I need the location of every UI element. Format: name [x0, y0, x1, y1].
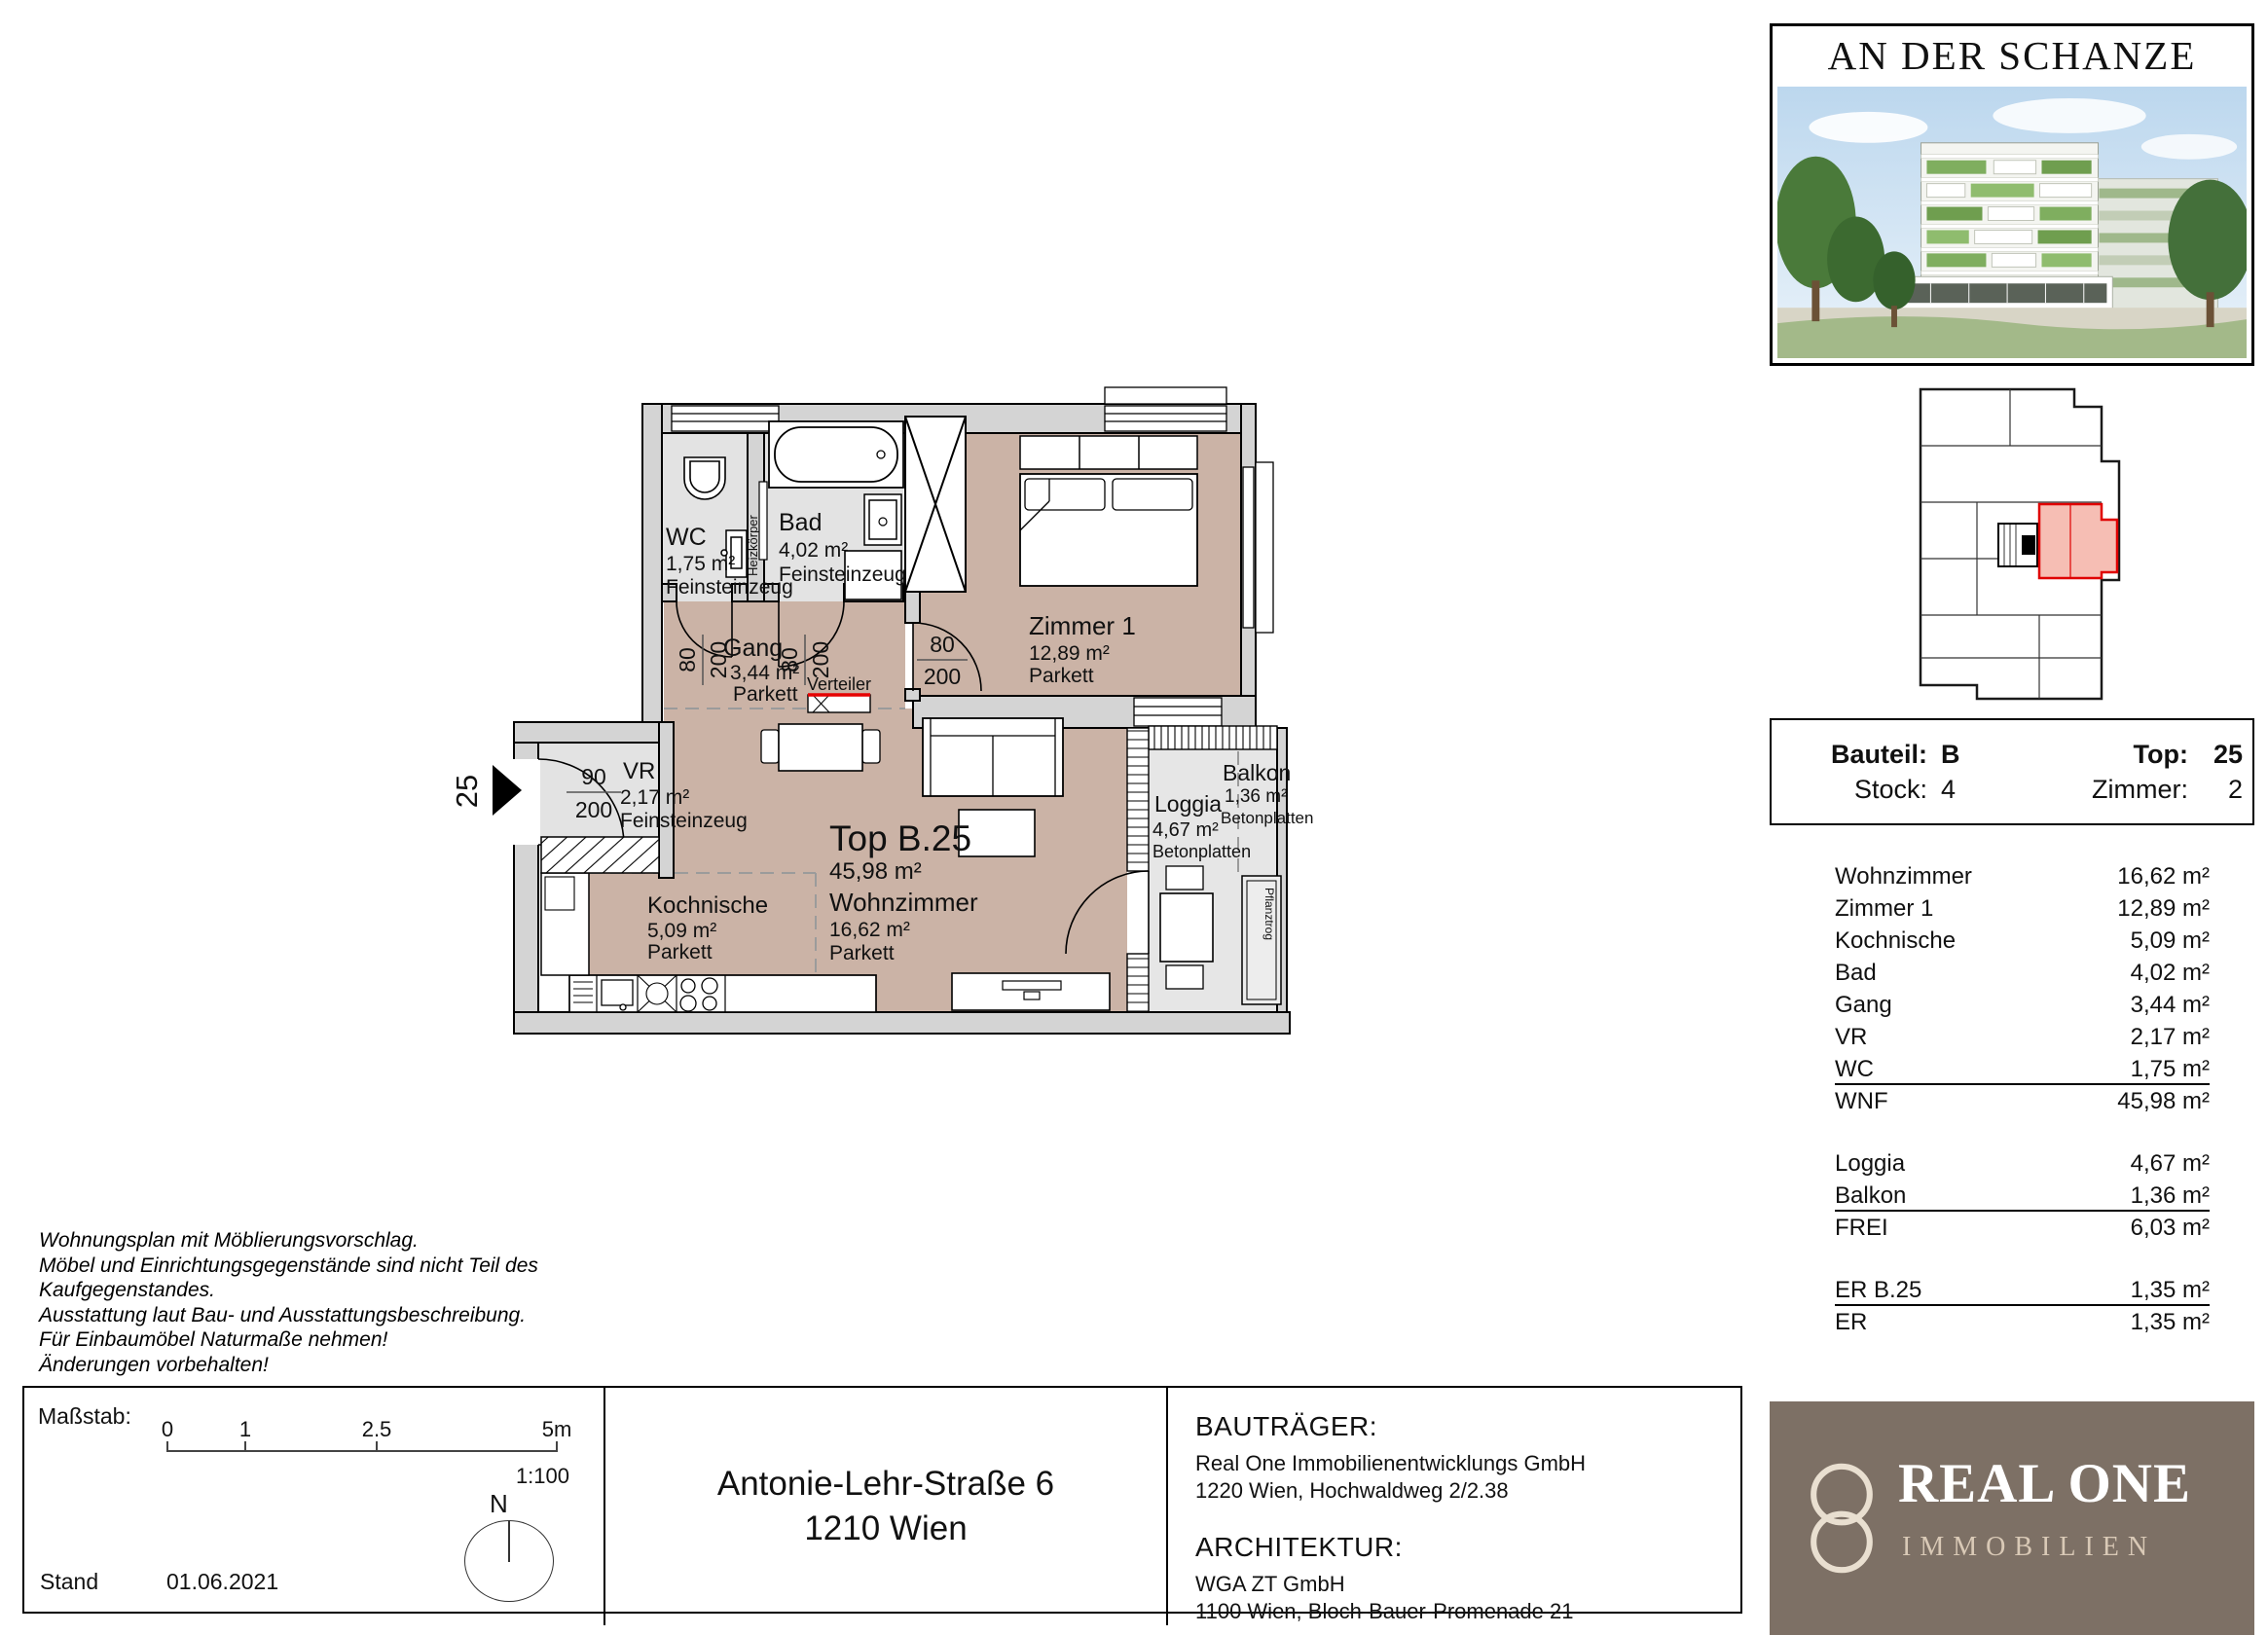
stand-label: Stand: [40, 1569, 98, 1595]
bad-area: 4,02 m²: [779, 539, 848, 562]
gang-floor: Parkett: [733, 683, 798, 706]
toilet-icon: [684, 457, 725, 499]
area-row: VR 2,17 m²: [1835, 1021, 2210, 1053]
key-plan: [1884, 378, 2137, 708]
area-row-label: Kochnische: [1835, 925, 1956, 957]
stair-core-icon: [1998, 524, 2037, 566]
balkon-area: 1,36 m²: [1225, 786, 1287, 807]
area-row-value: 1,36 m²: [2131, 1180, 2210, 1210]
heizkoerper-label: Heizkörper: [746, 514, 760, 576]
top-label: Top:: [1999, 739, 2188, 770]
area-row-label: Loggia: [1835, 1147, 1905, 1180]
area-table: Wohnzimmer 16,62 m² Zimmer 1 12,89 m² Ko…: [1835, 860, 2210, 1338]
area-row-label: FREI: [1835, 1212, 1888, 1244]
area-row: Gang 3,44 m²: [1835, 989, 2210, 1021]
entrance-door-height: 200: [575, 797, 612, 822]
building-rendering: [1777, 87, 2247, 358]
kochnische-label: Kochnische: [647, 892, 768, 919]
kitchen-counter-icon: [569, 975, 876, 1012]
area-row-value: 5,09 m²: [2131, 925, 2210, 957]
entrance-number: 25: [450, 775, 484, 808]
area-row-value: 4,02 m²: [2131, 957, 2210, 989]
address-line2: 1210 Wien: [804, 1507, 967, 1551]
disclaimer-line: Änderungen vorbehalten!: [39, 1353, 604, 1378]
area-row-value: 12,89 m²: [2117, 892, 2210, 925]
company-logo: REAL ONE IMMOBILIEN: [1770, 1401, 2254, 1635]
area-row-label: WNF: [1835, 1085, 1888, 1117]
project-title: AN DER SCHANZE: [1773, 26, 2251, 85]
top-unit-area: 45,98 m²: [829, 858, 922, 885]
area-row-total: ER 1,35 m²: [1835, 1306, 2210, 1338]
loggia-label: Loggia: [1154, 791, 1222, 817]
area-row-label: Zimmer 1: [1835, 892, 1933, 925]
scale-tick: [376, 1441, 378, 1452]
area-row-label: Balkon: [1835, 1180, 1906, 1210]
architektur-heading: ARCHITEKTUR:: [1195, 1532, 1740, 1563]
scale-tick-label: 5m: [528, 1417, 586, 1442]
wohnzimmer-area: 16,62 m²: [829, 919, 910, 941]
bauteil-value: B: [1941, 739, 1999, 770]
area-row-value: 3,44 m²: [2131, 989, 2210, 1021]
pflanztrog-label: Pflanztrog: [1262, 888, 1276, 940]
wc-floor: Feinsteinzeug: [666, 576, 793, 599]
kochnische-area: 5,09 m²: [647, 920, 716, 942]
area-row: Wohnzimmer 16,62 m²: [1835, 860, 2210, 892]
area-row-value: 1,35 m²: [2131, 1306, 2210, 1338]
project-header: AN DER SCHANZE: [1770, 23, 2254, 366]
logo-mark-icon: [1795, 1442, 1888, 1594]
bad-label: Bad: [779, 509, 822, 536]
stock-label: Stock:: [1781, 774, 1927, 805]
massstab-label: Maßstab:: [38, 1403, 131, 1430]
glazing-wall-icon: [1127, 728, 1149, 1012]
wc-area: 1,75 m²: [666, 553, 735, 575]
loggia-area: 4,67 m²: [1152, 819, 1219, 841]
wardrobe-icon: [1020, 436, 1197, 469]
area-row-value: 1,35 m²: [2131, 1274, 2210, 1304]
zimmer1-label: Zimmer 1: [1029, 611, 1136, 640]
area-row-value: 2,17 m²: [2131, 1021, 2210, 1053]
scale-tick-label: 2.5: [348, 1417, 406, 1442]
area-row-label: WC: [1835, 1053, 1874, 1083]
area-row: Loggia 4,67 m²: [1835, 1147, 2210, 1180]
disclaimer-line: Ausstattung laut Bau- und Ausstattungsbe…: [39, 1303, 604, 1328]
scale-ratio: 1:100: [482, 1464, 569, 1489]
bathtub-icon: [769, 421, 903, 488]
area-row-label: VR: [1835, 1021, 1867, 1053]
zimmer1-area: 12,89 m²: [1029, 642, 1110, 665]
scale-tick-label: 1: [216, 1417, 274, 1442]
zimmer1-door-height: 200: [924, 664, 961, 689]
scale-tick: [556, 1441, 558, 1452]
developer-cell: BAUTRÄGER: Real One Immobilienentwicklun…: [1168, 1388, 1740, 1625]
area-row-label: ER: [1835, 1306, 1867, 1338]
top-value: 25: [2188, 739, 2243, 770]
area-row: ER B.25 1,35 m²: [1835, 1274, 2210, 1306]
wohnzimmer-label: Wohnzimmer: [829, 888, 978, 917]
vr-area: 2,17 m²: [620, 786, 689, 809]
vr-label: VR: [623, 758, 655, 784]
dining-table-icon: [761, 724, 880, 771]
zimmer-label: Zimmer:: [1999, 774, 2188, 805]
planter-icon: Pflanztrog: [1242, 876, 1281, 1004]
unit-info-row: Bauteil: B Top: 25: [1781, 739, 2243, 770]
zimmer1-door-width: 80: [930, 632, 955, 657]
bad-floor: Feinsteinzeug: [779, 563, 906, 586]
area-row: Bad 4,02 m²: [1835, 957, 2210, 989]
area-row-value: 1,75 m²: [2131, 1053, 2210, 1083]
bed-icon: [1020, 474, 1197, 586]
scale-tick: [244, 1441, 246, 1452]
wc-door-height: 200: [706, 641, 731, 678]
loggia-floor: Betonplatten: [1152, 842, 1251, 861]
entrance-opening: [512, 759, 540, 845]
zimmer-value: 2: [2188, 774, 2243, 805]
bautraeger-heading: BAUTRÄGER:: [1195, 1411, 1740, 1442]
bad-door-height: 200: [808, 641, 833, 678]
bautraeger-line: Real One Immobilienentwicklungs GmbH: [1195, 1450, 1740, 1477]
gang-label: Gang: [723, 635, 783, 662]
wc-label: WC: [666, 524, 707, 551]
area-row: Kochnische 5,09 m²: [1835, 925, 2210, 957]
area-row: Balkon 1,36 m²: [1835, 1180, 2210, 1212]
architektur-line: WGA ZT GmbH: [1195, 1571, 1740, 1598]
tv-board-icon: [952, 973, 1110, 1010]
area-row-label: ER B.25: [1835, 1274, 1921, 1304]
disclaimer-text: Wohnungsplan mit Möblierungsvorschlag. M…: [39, 1228, 604, 1377]
disclaimer-line: Kaufgegenstandes.: [39, 1278, 604, 1303]
tall-cabinet-icon: [541, 873, 589, 975]
disclaimer-line: Möbel und Einrichtungsgegenstände sind n…: [39, 1253, 604, 1279]
floor-plan: 25: [438, 375, 1392, 1056]
area-row-label: Wohnzimmer: [1835, 860, 1972, 892]
bad-washbasin-icon: [864, 494, 901, 545]
wohnzimmer-floor: Parkett: [829, 942, 895, 964]
radiator-icon: [759, 482, 767, 560]
area-row-value: 6,03 m²: [2131, 1212, 2210, 1244]
balcony-railing-icon: [1149, 726, 1277, 749]
scale-bar: [167, 1450, 557, 1452]
zimmer1-floor: Parkett: [1029, 665, 1094, 687]
area-row-total: WNF 45,98 m²: [1835, 1085, 2210, 1117]
bad-door-width: 80: [777, 647, 802, 672]
title-block: Maßstab: 0 1 2.5 5m 1:100 N Stand 01.06.…: [22, 1386, 1742, 1614]
area-row: Zimmer 1 12,89 m²: [1835, 892, 2210, 925]
address-line1: Antonie-Lehr-Straße 6: [717, 1462, 1054, 1507]
entrance-door-width: 90: [581, 764, 606, 789]
vr-wardrobe-icon: [541, 837, 659, 873]
area-row-value: 45,98 m²: [2117, 1085, 2210, 1117]
area-row-total: FREI 6,03 m²: [1835, 1212, 2210, 1244]
scale-tick-label: 0: [138, 1417, 197, 1442]
bautraeger-line: 1220 Wien, Hochwaldweg 2/2.38: [1195, 1477, 1740, 1505]
north-label: N: [490, 1489, 508, 1519]
bauteil-label: Bauteil:: [1781, 739, 1927, 770]
area-row-label: Bad: [1835, 957, 1877, 989]
verteiler-icon: [808, 695, 870, 712]
stock-value: 4: [1941, 774, 1999, 805]
shaft-icon: [905, 417, 966, 592]
area-row-value: 4,67 m²: [2131, 1147, 2210, 1180]
table-spacer: [1835, 1244, 2210, 1274]
disclaimer-line: Für Einbaumöbel Naturmaße nehmen!: [39, 1327, 604, 1353]
unit-info-row: Stock: 4 Zimmer: 2: [1781, 774, 2243, 805]
logo-subtitle: IMMOBILIEN: [1902, 1532, 2156, 1563]
top-unit-label: Top B.25: [829, 818, 971, 858]
architektur-line: 1100 Wien, Bloch-Bauer-Promenade 21: [1195, 1598, 1740, 1625]
wc-door-width: 80: [675, 647, 700, 672]
unit-info: Bauteil: B Top: 25 Stock: 4 Zimmer: 2: [1770, 718, 2254, 825]
balkon-floor: Betonplatten: [1221, 809, 1313, 827]
balkon-label: Balkon: [1223, 760, 1291, 785]
floorplan-sheet: 25: [0, 0, 2268, 1635]
scale-tick: [166, 1441, 168, 1452]
sink-icon: [602, 980, 633, 1010]
sofa-icon: [923, 718, 1063, 796]
scale-cell: Maßstab: 0 1 2.5 5m 1:100 N Stand 01.06.…: [24, 1388, 605, 1625]
address-cell: Antonie-Lehr-Straße 6 1210 Wien: [605, 1388, 1168, 1625]
kochnische-floor: Parkett: [647, 941, 713, 963]
area-row-label: Gang: [1835, 989, 1892, 1021]
building-rendering-image: [1777, 87, 2247, 358]
disclaimer-line: Wohnungsplan mit Möblierungsvorschlag.: [39, 1228, 604, 1253]
stand-date: 01.06.2021: [166, 1569, 278, 1595]
area-row-value: 16,62 m²: [2117, 860, 2210, 892]
area-row: WC 1,75 m²: [1835, 1053, 2210, 1085]
table-spacer: [1835, 1117, 2210, 1147]
logo-name: REAL ONE: [1898, 1452, 2191, 1515]
compass-needle-icon: [508, 1521, 510, 1562]
vr-floor: Feinsteinzeug: [620, 810, 748, 832]
